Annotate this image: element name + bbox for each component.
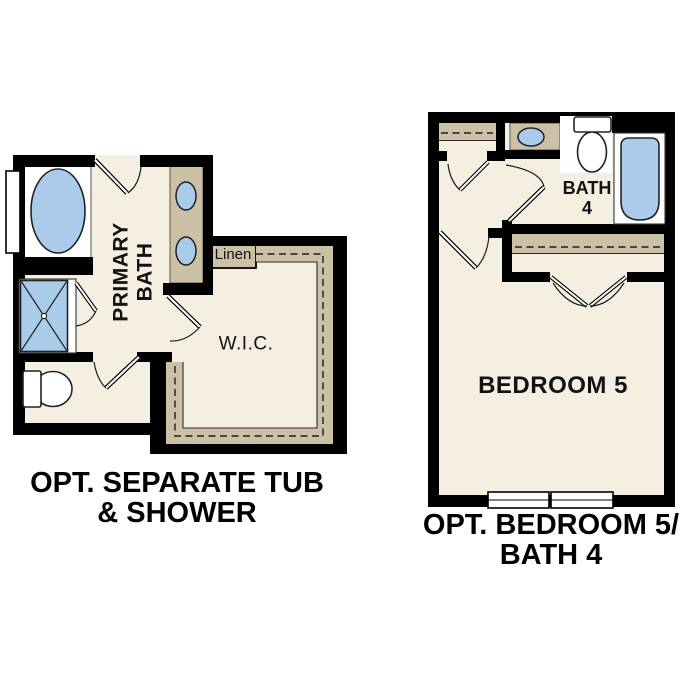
wic-label: W.I.C.: [219, 335, 274, 356]
linen-label: Linen: [215, 247, 252, 264]
floorplan-canvas: PRIMARY BATH Linen W.I.C. BATH 4 BEDROOM…: [0, 0, 687, 687]
sink-icon: [518, 128, 544, 146]
closet1-shelf: [439, 123, 496, 140]
sink-icon: [176, 237, 196, 265]
floorplan-drawing: [0, 0, 687, 687]
toilet-bowl-icon: [578, 132, 607, 172]
toilet-tank-icon: [574, 117, 611, 132]
window-icon: [6, 171, 20, 253]
shower-drain: [41, 313, 46, 318]
wic-shelf-right: [317, 246, 333, 444]
right-plan-caption: OPT. BEDROOM 5/ BATH 4: [423, 510, 679, 570]
bath4-label: BATH 4: [563, 179, 612, 219]
left-plan-caption: OPT. SEPARATE TUB & SHOWER: [30, 468, 324, 528]
bedroom5-label: BEDROOM 5: [478, 373, 628, 399]
closet2-shelf: [512, 234, 664, 253]
bathtub-icon: [621, 138, 659, 220]
toilet-tank-icon: [23, 371, 41, 407]
primary-bath-label: PRIMARY BATH: [109, 222, 156, 322]
bathtub-icon: [31, 169, 85, 253]
sink-icon: [176, 182, 196, 210]
